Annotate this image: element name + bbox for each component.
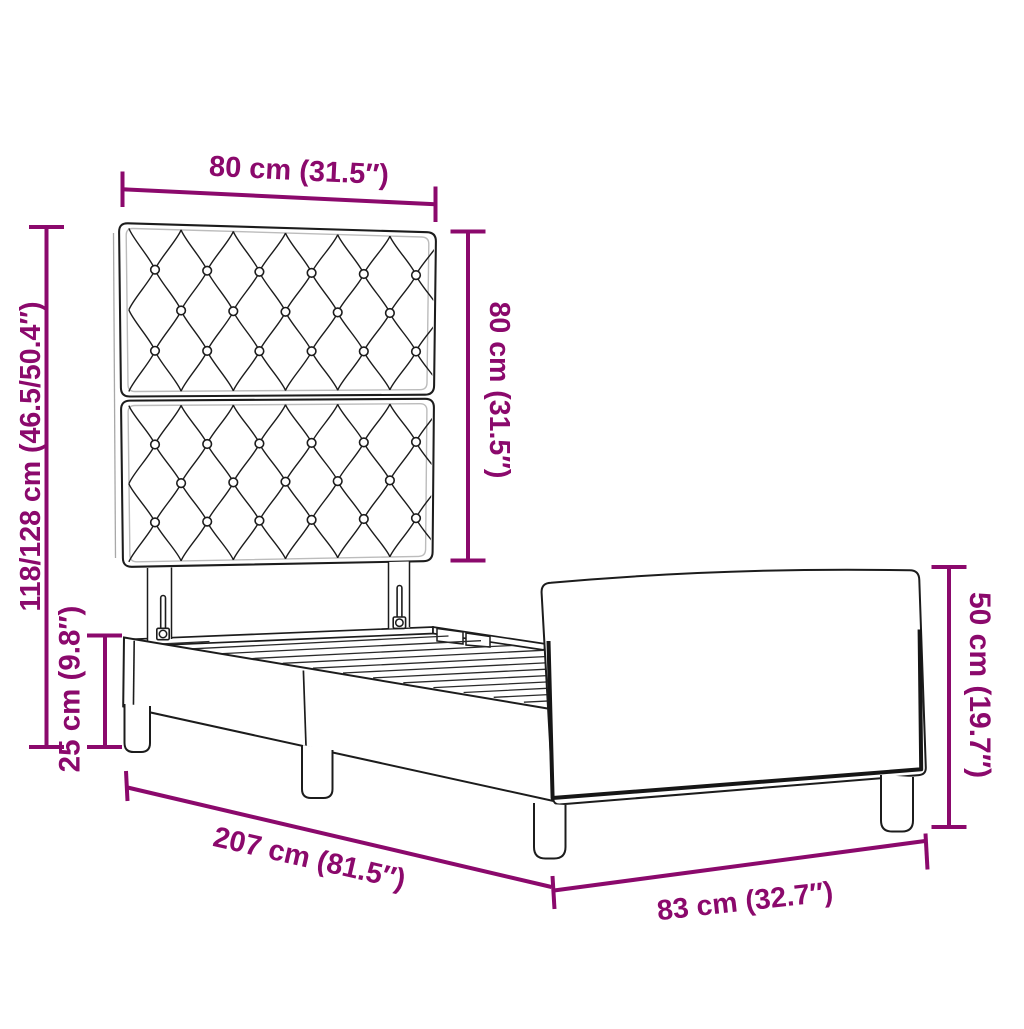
svg-text:80 cm (31.5″): 80 cm (31.5″) (483, 302, 515, 479)
svg-text:118/128 cm (46.5/50.4″): 118/128 cm (46.5/50.4″) (15, 302, 47, 612)
svg-text:50 cm (19.7″): 50 cm (19.7″) (963, 592, 996, 778)
svg-text:25 cm (9.8″): 25 cm (9.8″) (54, 606, 87, 773)
